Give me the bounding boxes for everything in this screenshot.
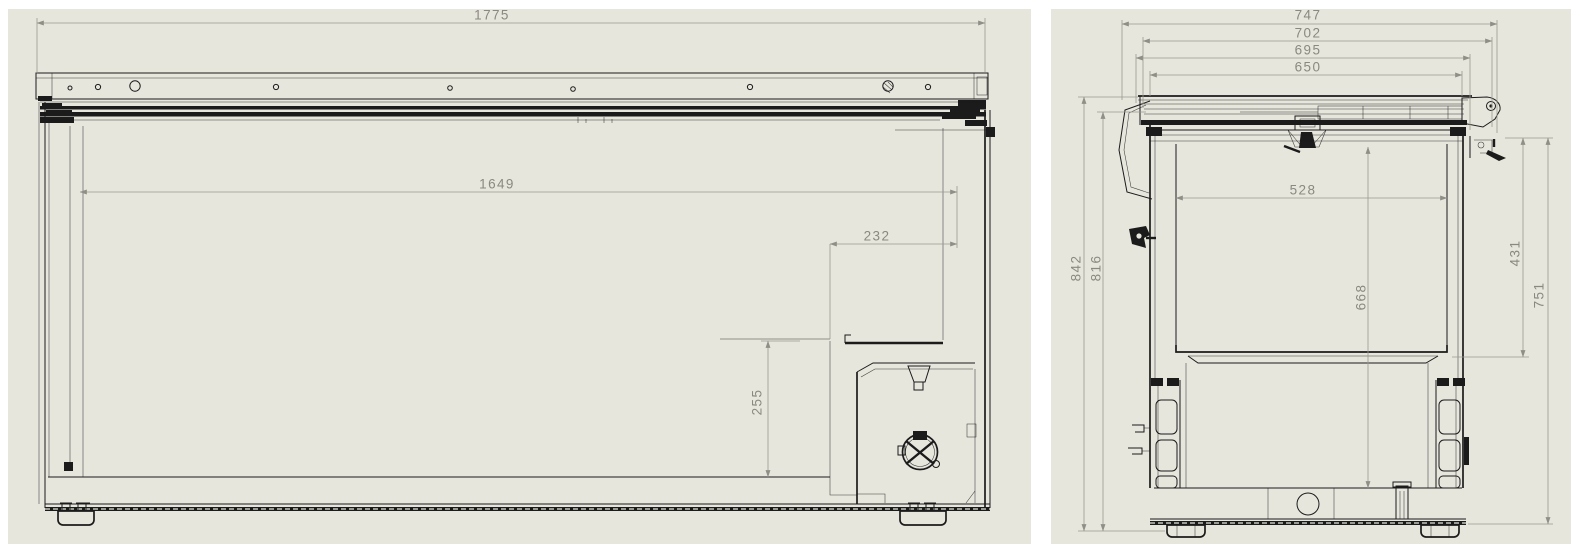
dim-side-depth-4: 650 [1295,60,1322,74]
front-right-hinge [942,100,995,137]
front-base [45,504,990,511]
front-left-foot [58,503,94,525]
side-left-vent-panel [1151,378,1180,488]
front-view-dimension-lines [37,18,985,477]
drawing-canvas: 1775 1649 232 255 747 702 695 650 842 81… [0,0,1579,553]
side-right-foot [1421,525,1459,537]
dim-side-right-height: 751 [1532,282,1546,309]
front-lid-rail [36,73,988,99]
side-view-geometry [1119,96,1506,537]
dim-side-depth-2: 702 [1295,26,1322,40]
side-latch [1470,136,1506,161]
dim-side-overall-depth: 747 [1295,8,1322,22]
side-right-vent-panel [1436,378,1469,488]
side-cord-hooks [1128,425,1150,454]
side-left-foot [1167,525,1205,537]
dim-front-overall-width: 1775 [474,8,510,22]
dim-front-step-height: 255 [750,389,764,416]
dim-front-step-width: 232 [864,229,891,243]
dim-side-interior-depth: 668 [1354,284,1368,311]
side-hinge [1462,97,1500,127]
side-wall-clip [1129,226,1156,248]
dim-side-overall-height: 842 [1069,255,1083,282]
side-body [1146,125,1466,488]
front-junction-band [40,102,988,130]
dim-side-height-2: 816 [1089,255,1103,282]
side-base [1150,482,1466,525]
front-body [39,102,990,508]
linework-svg [0,0,1579,553]
dim-front-opening-width: 1649 [479,177,515,191]
side-handle [1119,101,1152,199]
front-right-foot [900,503,946,525]
front-compressor [898,431,940,470]
dim-side-upper-interior-height: 431 [1508,240,1522,267]
front-view-geometry [36,73,995,525]
side-lid [1138,96,1472,125]
dim-side-opening-depth: 528 [1290,183,1317,197]
dim-side-depth-3: 695 [1295,43,1322,57]
